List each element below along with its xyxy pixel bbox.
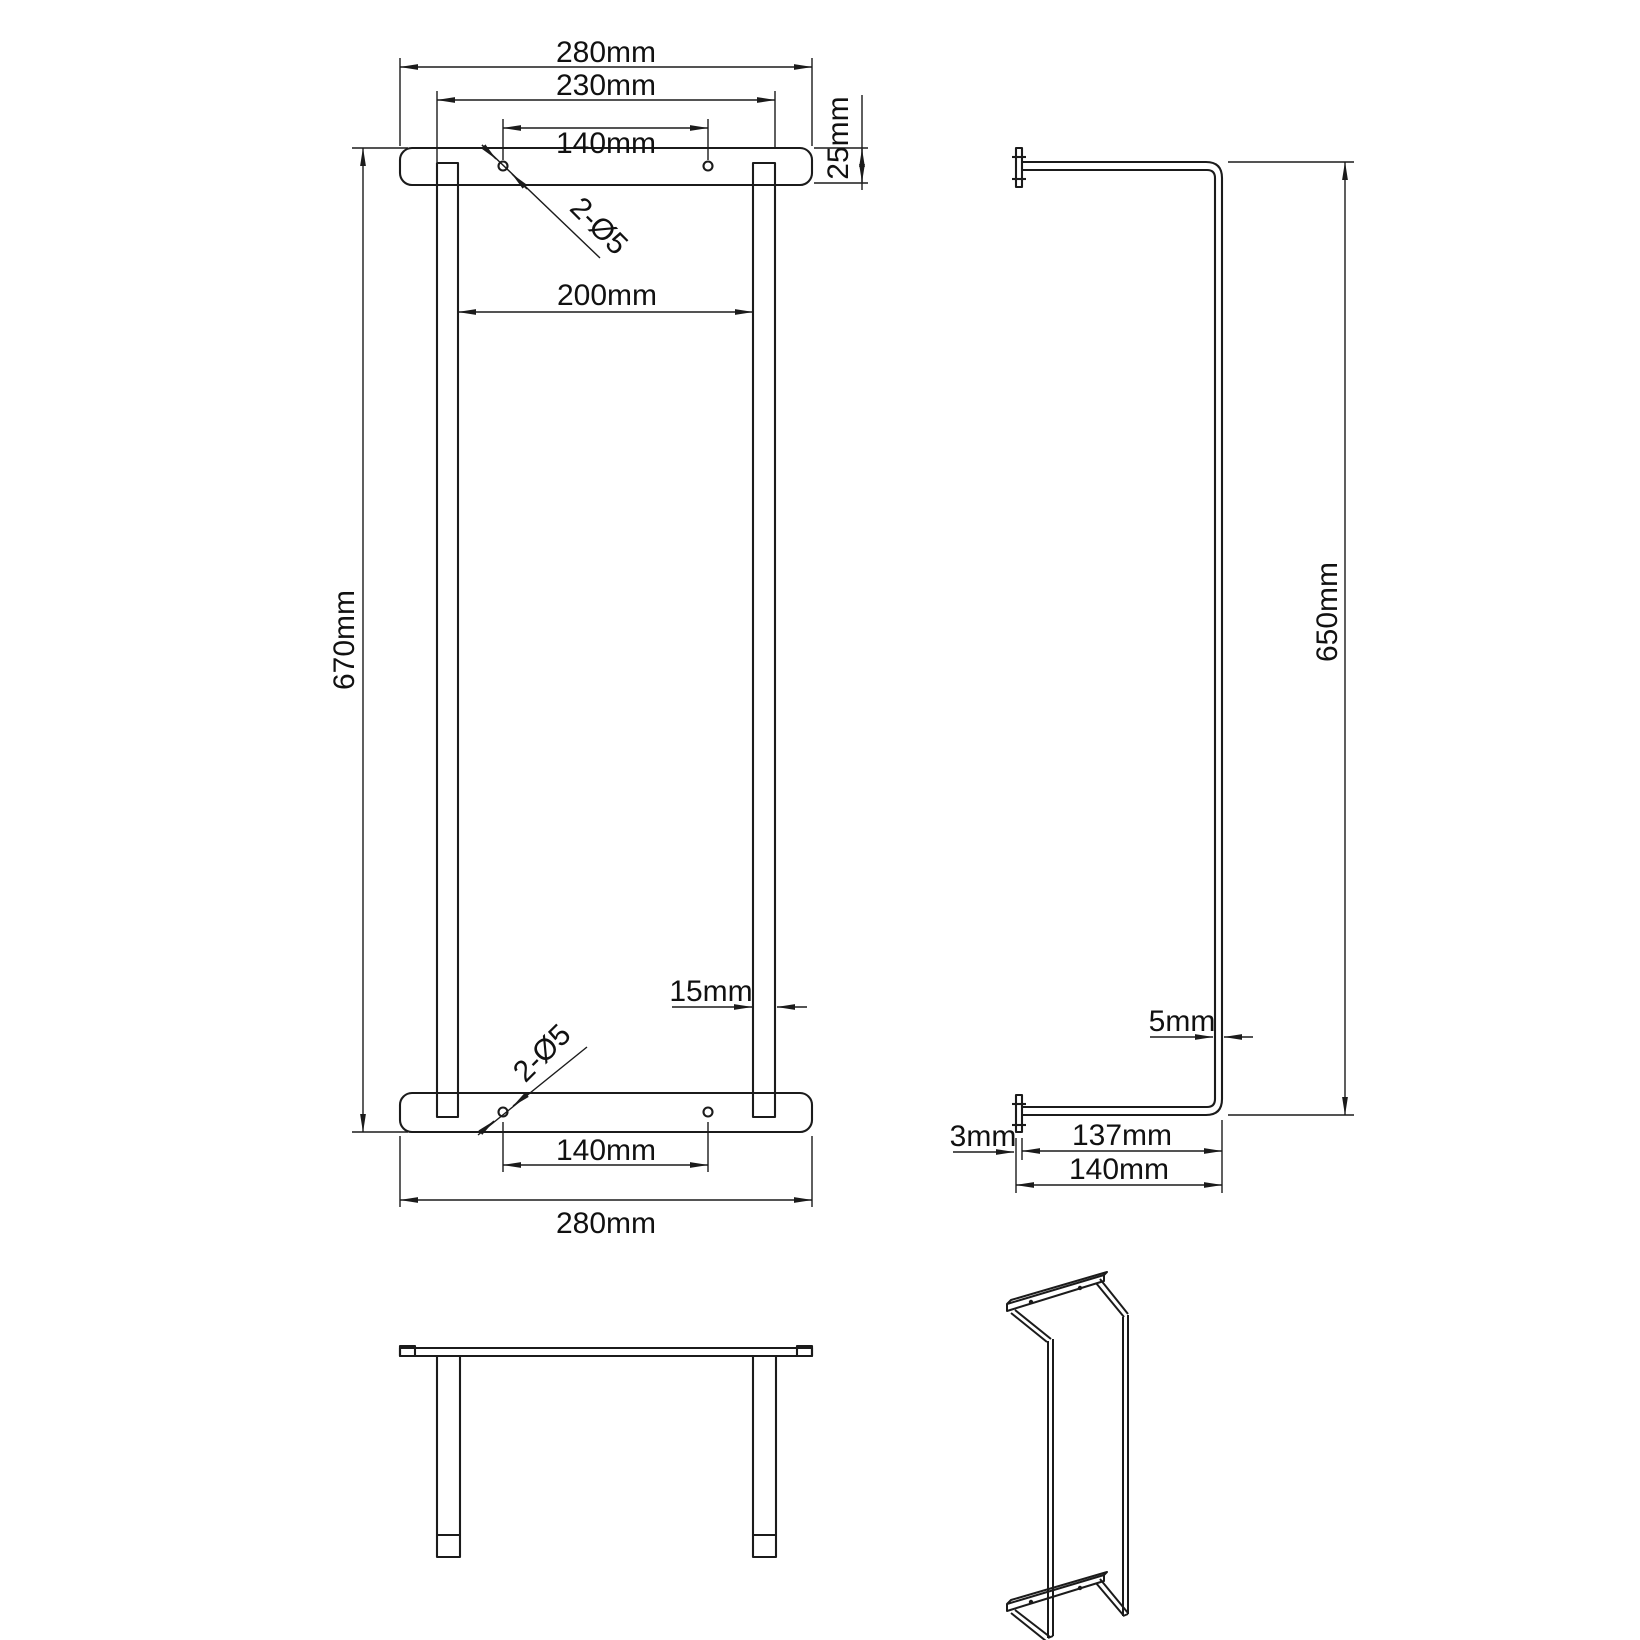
left-post	[437, 163, 458, 1117]
leader-arrow	[513, 1093, 529, 1106]
dim-label-plate-thickness: 3mm	[950, 1120, 1017, 1153]
iso-top-rail	[1007, 1275, 1104, 1311]
bottom-mounting-bar	[400, 1093, 812, 1132]
side-view-dimensions: 650mm 5mm 3mm 137mm 140mm	[950, 162, 1354, 1193]
dim-label-post-width: 15mm	[669, 975, 752, 1008]
frame-inner-contour	[1022, 170, 1215, 1107]
iso-right-bar	[1123, 1315, 1128, 1616]
dim-label-total-height: 670mm	[328, 590, 361, 690]
dim-label-depth-total: 140mm	[1069, 1153, 1169, 1186]
dim-label-plate-width: 230mm	[556, 69, 656, 102]
iso-bottom-rail	[1007, 1575, 1104, 1611]
iso-hole	[1078, 1586, 1082, 1590]
dim-label-hole-spacing-bottom: 140mm	[556, 1134, 656, 1167]
iso-bottom-left-arm	[1011, 1610, 1050, 1640]
side-view: 650mm 5mm 3mm 137mm 140mm	[950, 148, 1354, 1193]
dim-label-width-top: 280mm	[556, 36, 656, 69]
frame-outer-contour	[1022, 162, 1222, 1115]
iso-hole	[1029, 1600, 1033, 1604]
right-arm-top-view	[753, 1356, 776, 1557]
plan-view	[400, 1346, 812, 1557]
dim-label-hole-spacing-top: 140mm	[556, 127, 656, 160]
wall-bar-top-view	[400, 1348, 812, 1356]
leader-arrow	[512, 174, 527, 189]
dim-label-tube-thickness: 5mm	[1149, 1005, 1216, 1038]
dim-label-width-bottom: 280mm	[556, 1207, 656, 1240]
hole-callout-top: 2-Ø5	[563, 191, 634, 262]
front-view-dimensions: 280mm 230mm 140mm 25mm 2-Ø5 20	[328, 36, 868, 1240]
dim-label-inner-width: 200mm	[557, 279, 657, 312]
front-view: 280mm 230mm 140mm 25mm 2-Ø5 20	[328, 36, 868, 1240]
technical-drawing-page: 280mm 230mm 140mm 25mm 2-Ø5 20	[0, 0, 1640, 1640]
left-arm-top-view	[437, 1356, 460, 1557]
iso-top-left-arm	[1011, 1310, 1051, 1342]
iso-hole	[1078, 1286, 1082, 1290]
iso-hole	[1029, 1300, 1033, 1304]
side-view-geometry	[1012, 148, 1222, 1132]
dim-label-side-height: 650mm	[1311, 562, 1344, 662]
screw-hole	[704, 1108, 713, 1117]
right-post	[753, 163, 775, 1117]
bottom-wall-plate	[1016, 1095, 1022, 1132]
iso-left-bar	[1048, 1339, 1053, 1638]
hole-callout-bottom: 2-Ø5	[507, 1018, 578, 1089]
rack-technical-drawing: 280mm 230mm 140mm 25mm 2-Ø5 20	[0, 0, 1640, 1640]
iso-top-right-arm	[1096, 1279, 1128, 1317]
top-wall-plate	[1016, 148, 1022, 187]
isometric-view	[1007, 1272, 1128, 1640]
screw-hole	[704, 162, 713, 171]
dim-label-depth-inner: 137mm	[1072, 1119, 1172, 1152]
dim-label-bar-height: 25mm	[822, 96, 855, 179]
